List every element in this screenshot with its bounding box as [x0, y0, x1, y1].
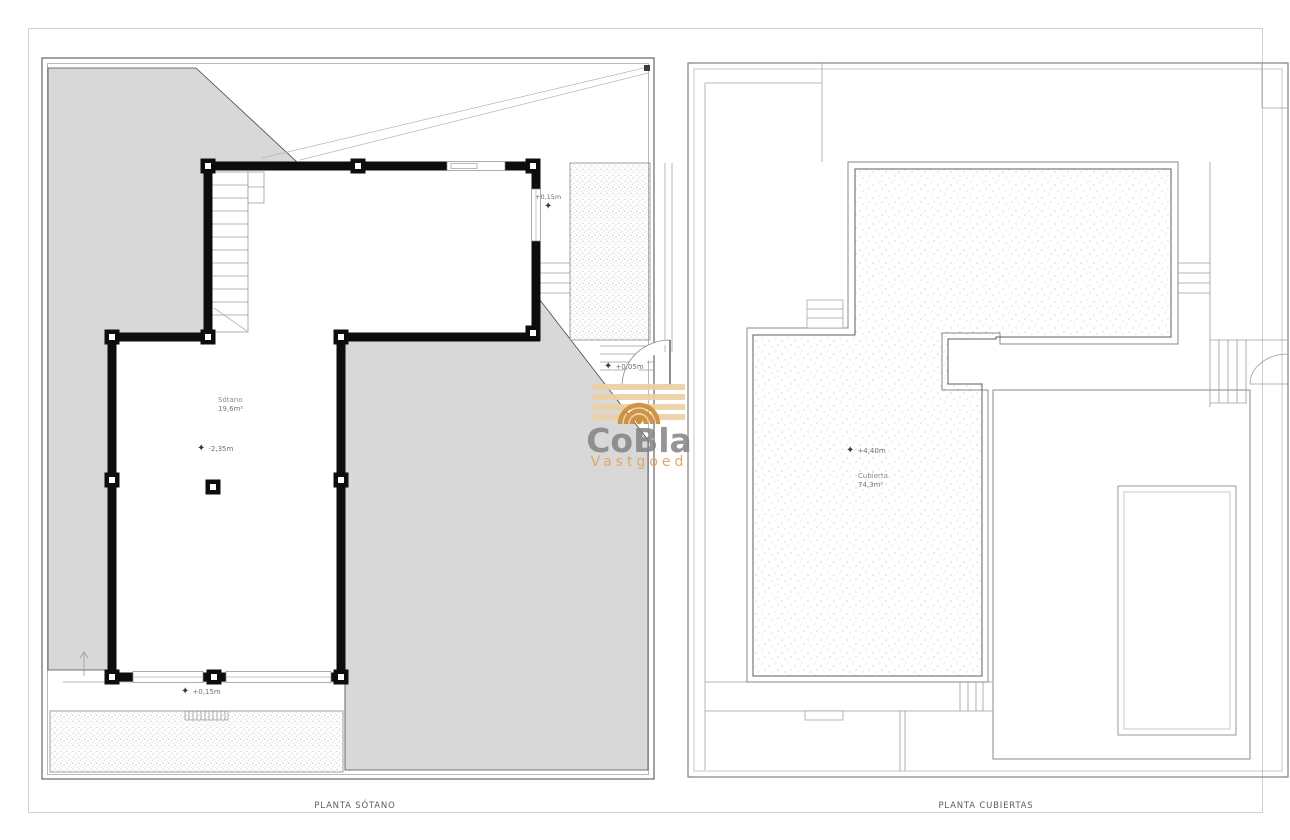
elevation-value: +0,15m [535, 193, 561, 201]
elevation-star-icon: ✦ [846, 446, 854, 456]
room-area: 74,3m² [858, 481, 888, 490]
roof-room-label: Cubierta 74,3m² [858, 472, 888, 490]
elevation-star-icon: ✦ [604, 362, 612, 372]
room-name: Sótano [218, 396, 243, 405]
basement-plan-caption: PLANTA SÓTANO [30, 801, 680, 811]
elevation-star-icon: ✦ [197, 444, 205, 454]
room-name: Cubierta [858, 472, 888, 481]
roof-plan-caption: PLANTA CUBIERTAS [680, 801, 1290, 811]
floorplan-sheet: Sótano 19,6m² ✦ -2,35m +0,15m ✦ ✦ +0,05m… [0, 0, 1290, 840]
roof-plan-drawing [680, 0, 1290, 840]
watermark-brand-text: CoBla [586, 425, 692, 457]
elevation-star-icon: ✦ [181, 687, 189, 697]
room-area: 19,6m² [218, 405, 243, 414]
elevation-marker-roof: ✦ +4,40m [846, 446, 886, 456]
elevation-value: +0,05m [615, 363, 643, 371]
elevation-value: +0,15m [192, 688, 220, 696]
elevation-marker-entry: ✦ +0,05m [604, 362, 644, 372]
elevation-marker-top-right: +0,15m ✦ [535, 193, 561, 211]
elevation-marker-room: ✦ -2,35m [197, 444, 233, 454]
elevation-marker-bottom: ✦ +0,15m [181, 687, 221, 697]
basement-room-label: Sótano 19,6m² [218, 396, 243, 414]
watermark-arcs-icon [593, 381, 685, 425]
elevation-value: -2,35m [208, 445, 233, 453]
watermark-subtitle-text: Vastgoed [591, 455, 688, 470]
watermark: CoBla Vastgoed [583, 381, 695, 470]
basement-plan-drawing [0, 0, 680, 840]
elevation-value: +4,40m [857, 447, 885, 455]
elevation-star-icon: ✦ [544, 202, 552, 211]
